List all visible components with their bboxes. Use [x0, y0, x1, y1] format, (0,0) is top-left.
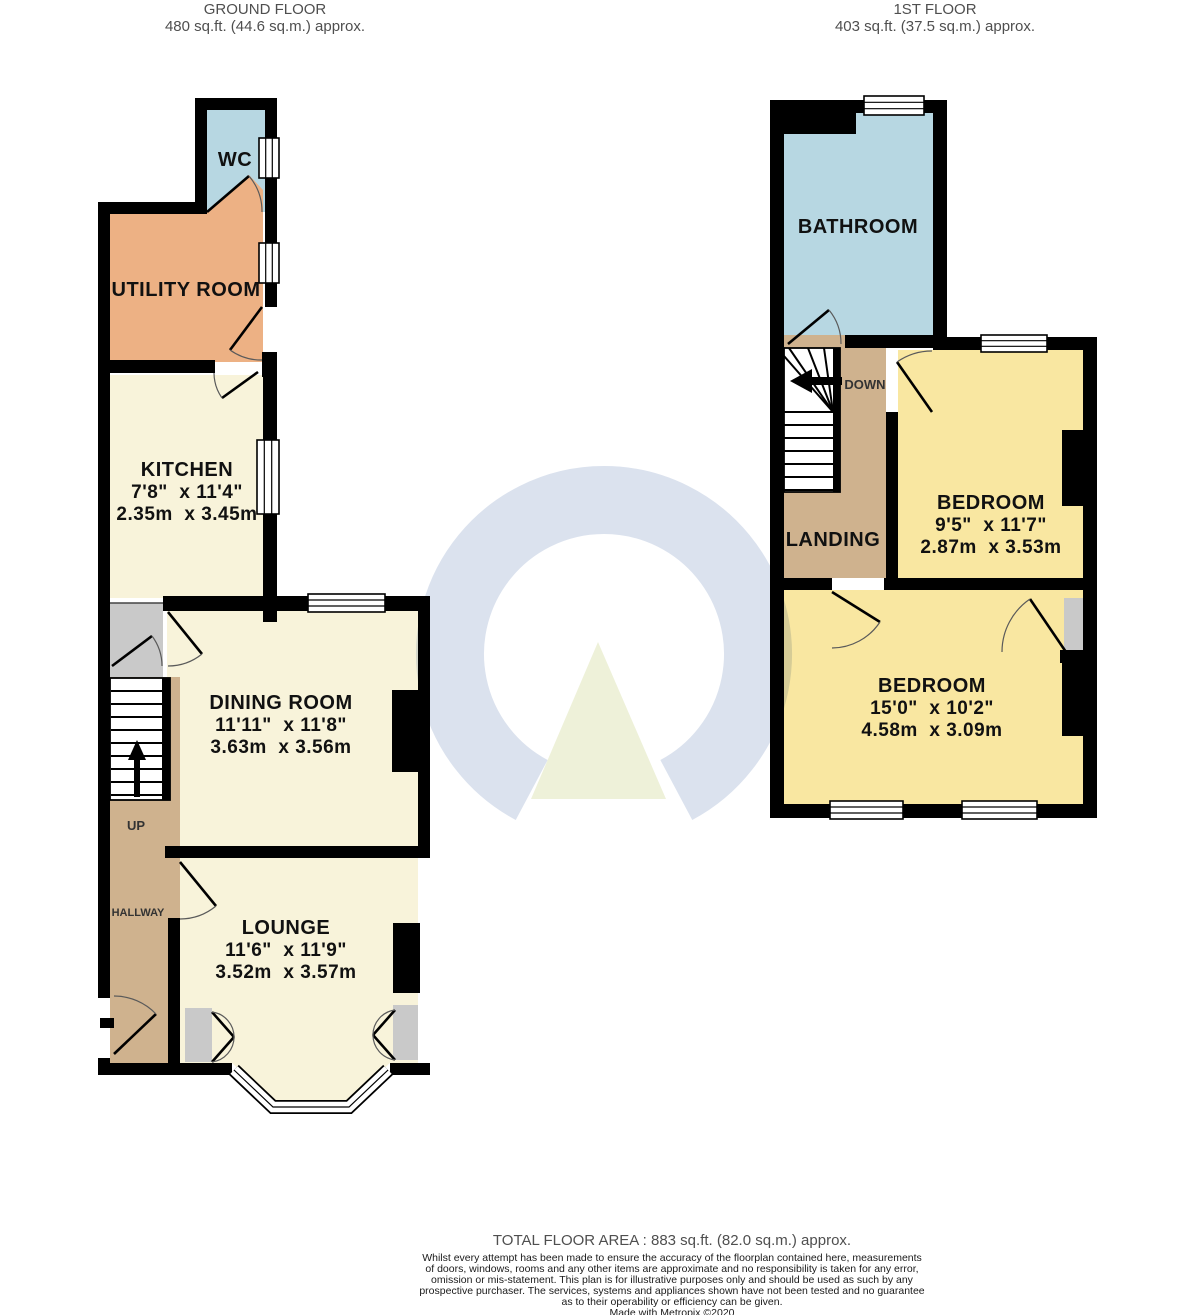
bedroom2-window-right [962, 801, 1037, 819]
bathroom-label: BATHROOM [798, 216, 918, 238]
dining-window [308, 594, 385, 612]
hallway-label: HALLWAY [112, 907, 165, 919]
stair-stringer [162, 678, 170, 800]
utility-window [259, 243, 279, 283]
stairwell-bulkhead [784, 113, 856, 134]
bedroom1-window [981, 335, 1047, 352]
bedroom2-label: BEDROOM [878, 675, 986, 697]
up-label: UP [127, 818, 145, 833]
bedroom2-chimney-breast [1062, 663, 1084, 736]
lounge-dims-metric: 3.52m x 3.57m [215, 962, 356, 983]
bedroom1-chimney-breast [1062, 430, 1085, 506]
bathroom-window [864, 96, 924, 115]
kitchen-window [257, 440, 279, 514]
wc-label: WC [218, 149, 252, 171]
ground-floor-area: 480 sq.ft. (44.6 sq.m.) approx. [165, 18, 365, 35]
wc-window [259, 138, 279, 178]
stair-stringer-upper [833, 348, 840, 492]
landing-label: LANDING [786, 529, 881, 551]
kitchen-dims-metric: 2.35m x 3.45m [116, 504, 257, 525]
dining-dims-metric: 3.63m x 3.56m [210, 737, 351, 758]
bedroom2-dims-imperial: 15'0" x 10'2" [870, 698, 994, 719]
dining-chimney-breast [392, 690, 420, 772]
ground-floor-staircase [110, 678, 170, 800]
lounge-alcove-right [393, 1005, 418, 1060]
lounge-alcove-left [185, 1008, 212, 1062]
metropix-watermark [450, 500, 758, 799]
first-floor-staircase [784, 348, 842, 492]
ground-floor-title: GROUND FLOOR [204, 1, 327, 18]
bedroom2-closet [1064, 598, 1084, 654]
down-label: DOWN [844, 377, 885, 392]
bedroom1-dims-metric: 2.87m x 3.53m [920, 537, 1061, 558]
lounge-dims-imperial: 11'6" x 11'9" [225, 940, 347, 961]
utility-label: UTILITY ROOM [112, 279, 261, 301]
lounge-chimney-breast [393, 923, 420, 993]
metropix-credit: Made with Metropix ©2020 [609, 1307, 734, 1315]
kitchen-label: KITCHEN [141, 459, 233, 481]
dining-dims-imperial: 11'11" x 11'8" [215, 715, 347, 736]
first-floor-area: 403 sq.ft. (37.5 sq.m.) approx. [835, 18, 1035, 35]
bedroom1-label: BEDROOM [937, 492, 1045, 514]
lounge-label: LOUNGE [242, 917, 331, 939]
first-floor-title: 1ST FLOOR [893, 1, 976, 18]
dining-label: DINING ROOM [209, 692, 352, 714]
watermark-triangle [531, 642, 666, 799]
kitchen-dims-imperial: 7'8" x 11'4" [131, 482, 243, 503]
total-floor-area: TOTAL FLOOR AREA : 883 sq.ft. (82.0 sq.m… [493, 1232, 851, 1249]
bedroom1-dims-imperial: 9'5" x 11'7" [935, 515, 1047, 536]
bedroom2-room [784, 590, 1083, 804]
floorplan-page: GROUND FLOOR 480 sq.ft. (44.6 sq.m.) app… [0, 0, 1200, 1315]
bedroom2-dims-metric: 4.58m x 3.09m [861, 720, 1002, 741]
bedroom2-window-left [830, 801, 903, 819]
